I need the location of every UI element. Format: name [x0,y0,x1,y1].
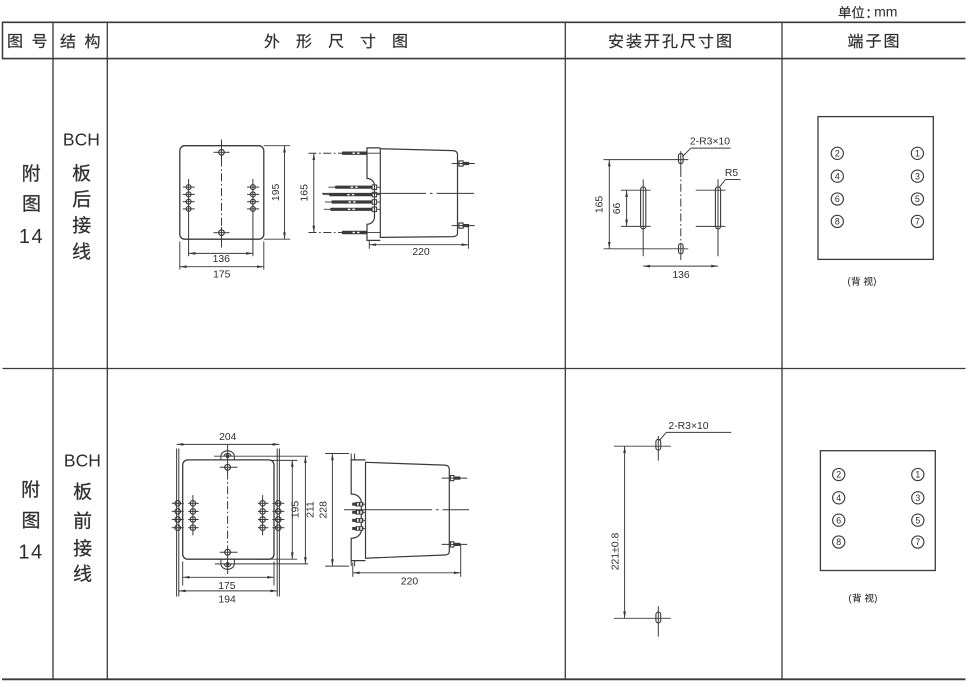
svg-text:BCH: BCH [63,130,100,150]
svg-text:194: 194 [218,595,236,606]
svg-text:175: 175 [218,581,236,592]
svg-text:2-R3×10: 2-R3×10 [690,137,730,148]
svg-text:136: 136 [213,254,231,265]
svg-text:4: 4 [836,493,841,503]
svg-text:7: 7 [915,537,920,547]
svg-text:(: ( [847,277,851,288]
svg-text:2: 2 [836,470,841,480]
svg-text:8: 8 [835,217,840,227]
svg-text:5: 5 [915,194,920,204]
svg-text:195: 195 [290,501,301,519]
svg-text:14: 14 [18,542,43,564]
svg-text:4: 4 [835,171,840,181]
svg-text:6: 6 [835,194,840,204]
svg-text:1: 1 [915,148,920,158]
svg-text:14: 14 [19,226,44,248]
svg-text:7: 7 [915,217,920,227]
svg-text:211: 211 [305,501,316,518]
svg-text:6: 6 [836,515,841,525]
svg-text:BCH: BCH [64,451,101,471]
svg-text:1: 1 [915,470,920,480]
svg-text:R5: R5 [725,168,739,179]
svg-text:165: 165 [299,184,310,202]
svg-text:175: 175 [213,270,231,281]
svg-text:): ) [874,593,877,604]
svg-text:8: 8 [836,537,841,547]
svg-text:204: 204 [219,432,237,443]
svg-text:3: 3 [915,493,920,503]
svg-text:): ) [873,277,876,288]
svg-text:5: 5 [915,515,920,525]
svg-text:220: 220 [412,247,430,258]
svg-text:136: 136 [672,270,690,281]
svg-text:3: 3 [915,171,920,181]
svg-text:220: 220 [401,577,419,588]
svg-text:165: 165 [595,196,606,214]
svg-text:66: 66 [612,203,623,215]
svg-text:221±0.8: 221±0.8 [611,533,622,571]
svg-text:195: 195 [271,184,282,202]
svg-text:2: 2 [835,148,840,158]
svg-text:mm: mm [874,3,897,19]
svg-text:(: ( [848,593,852,604]
svg-text:228: 228 [319,501,330,519]
svg-text:2-R3×10: 2-R3×10 [668,421,708,432]
